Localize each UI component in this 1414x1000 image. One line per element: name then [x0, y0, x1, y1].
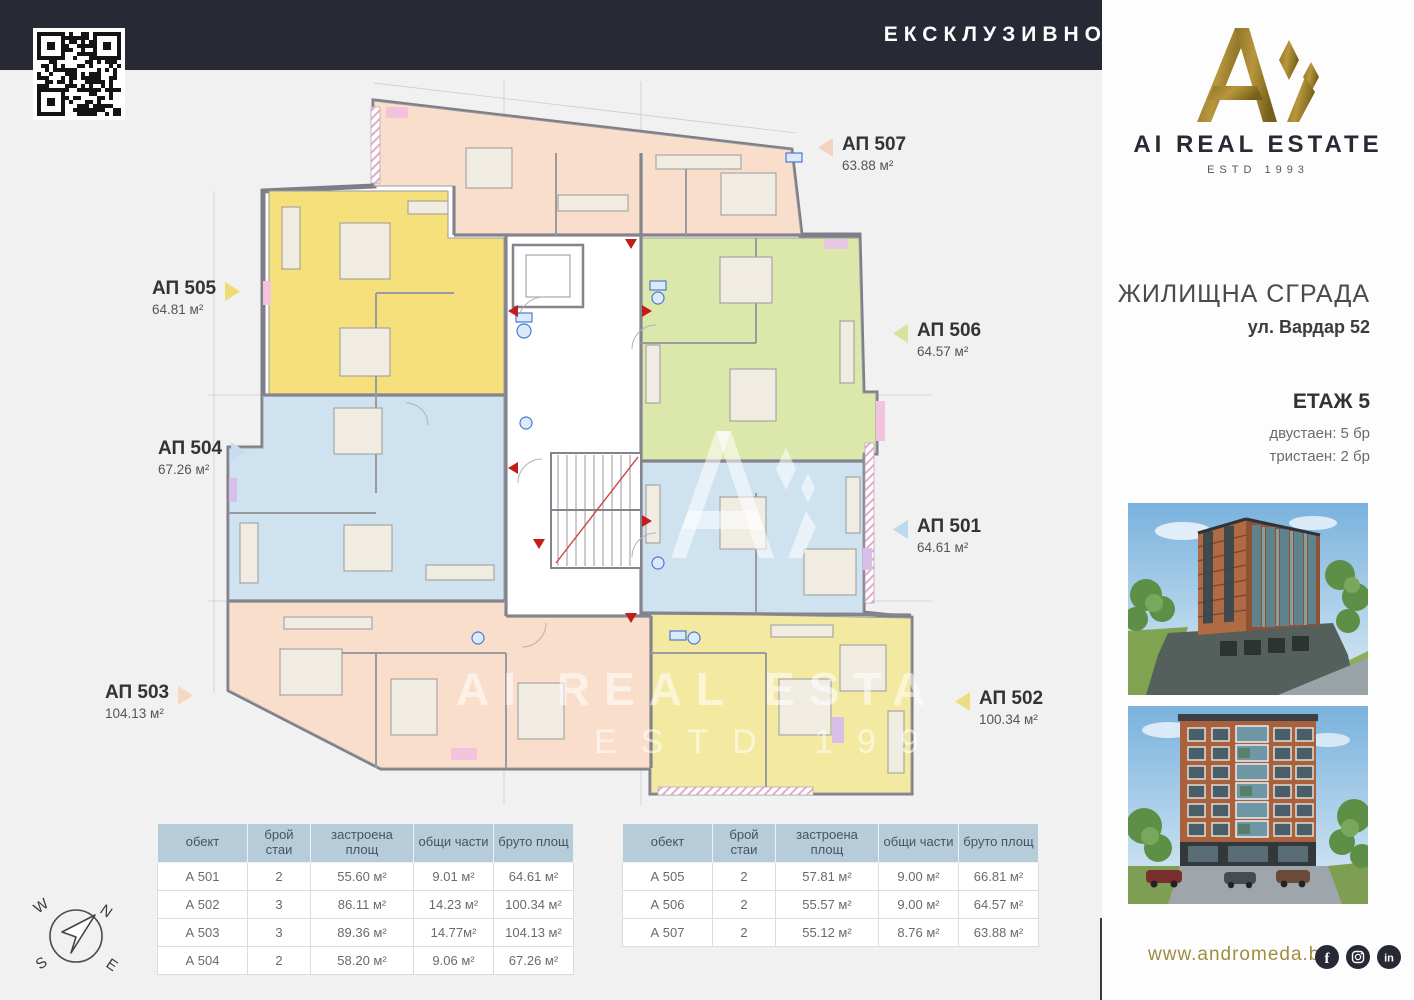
- svg-text:AI REAL ESTATE: AI REAL ESTATE: [456, 663, 936, 715]
- compass-rose: N E S W: [26, 886, 126, 986]
- social-icons: f in: [1314, 944, 1402, 970]
- footer-divider: [1100, 918, 1102, 1000]
- arrow-left-icon: [893, 520, 908, 539]
- arrow-left-icon: [818, 138, 833, 157]
- floor-label: ЕТАЖ 5: [1110, 390, 1370, 414]
- apartment-label-504: АП 504 67.26 м²: [158, 438, 246, 477]
- compass-n: N: [97, 901, 116, 921]
- compass-s: S: [33, 954, 51, 974]
- column-header: брой стаи: [713, 824, 776, 863]
- facebook-icon[interactable]: f: [1315, 945, 1339, 969]
- column-header: бруто площ: [959, 824, 1039, 863]
- brand-logo: AI REAL ESTATE ESTD 1993: [1102, 22, 1414, 176]
- table-row: А 501255.60 м²9.01 м²64.61 м²: [158, 862, 574, 890]
- apartment-label-507: АП 507 63.88 м²: [818, 134, 906, 173]
- column-header: обект: [623, 824, 713, 863]
- column-header: бруто площ: [494, 824, 574, 863]
- svg-text:ESTD 1993: ESTD 1993: [594, 723, 936, 761]
- brand-name: AI REAL ESTATE: [1102, 131, 1414, 159]
- arrow-left-icon: [893, 324, 908, 343]
- column-header: брой стаи: [248, 824, 311, 863]
- building-photo-1: [1128, 503, 1368, 695]
- arrow-right-icon: [231, 442, 246, 461]
- table-row: А 506255.57 м²9.00 м²64.57 м²: [623, 890, 1039, 918]
- building-photo-2: [1128, 706, 1368, 904]
- apartment-label-503: АП 503 104.13 м²: [105, 682, 193, 721]
- apartment-label-502: АП 502 100.34 м²: [955, 688, 1043, 727]
- linkedin-icon[interactable]: in: [1377, 945, 1401, 969]
- compass-w: W: [31, 895, 53, 918]
- compass-e: E: [103, 955, 121, 975]
- column-header: обект: [158, 824, 248, 863]
- header-bar: ЕКСКЛУЗИВНО ОТ: [0, 0, 1208, 70]
- table-row: А 503389.36 м²14.77м²104.13 м²: [158, 918, 574, 946]
- arrow-right-icon: [225, 282, 240, 301]
- project-info: ЖИЛИЩНА СГРАДА ул. Вардар 52 ЕТАЖ 5 двус…: [1110, 280, 1370, 469]
- apartments-table-1: обектброй стаизастроена площобщи частибр…: [157, 823, 574, 975]
- unit-mix-item: тристаен: 2 бр: [1110, 445, 1370, 468]
- column-header: общи части: [879, 824, 959, 863]
- column-header: общи части: [414, 824, 494, 863]
- unit-mix-item: двустаен: 5 бр: [1110, 422, 1370, 445]
- qr-code: [33, 28, 125, 120]
- apartment-label-506: АП 506 64.57 м²: [893, 320, 981, 359]
- table-row: А 505257.81 м²9.00 м²66.81 м²: [623, 862, 1039, 890]
- website-link[interactable]: www.andromeda.bg: [1148, 944, 1332, 966]
- table-row: А 502386.11 м²14.23 м²100.34 м²: [158, 890, 574, 918]
- apartment-label-505: АП 505 64.81 м²: [152, 278, 240, 317]
- column-header: застроена площ: [776, 824, 879, 863]
- arrow-right-icon: [178, 686, 193, 705]
- arrow-left-icon: [955, 692, 970, 711]
- apartment-label-501: АП 501 64.61 м²: [893, 516, 981, 555]
- svg-text:in: in: [1384, 953, 1394, 965]
- instagram-icon[interactable]: [1346, 945, 1370, 969]
- brand-mark-icon: [1183, 22, 1333, 127]
- unit-mix: двустаен: 5 бр тристаен: 2 бр: [1110, 422, 1370, 469]
- brand-estd: ESTD 1993: [1102, 164, 1414, 176]
- project-title: ЖИЛИЩНА СГРАДА: [1110, 280, 1370, 309]
- project-address: ул. Вардар 52: [1110, 317, 1370, 338]
- column-header: застроена площ: [311, 824, 414, 863]
- table-row: А 504258.20 м²9.06 м²67.26 м²: [158, 946, 574, 974]
- floor-plan: AI REAL ESTATE ESTD 1993: [206, 78, 936, 818]
- apartments-table-2: обектброй стаизастроена площобщи частибр…: [622, 823, 1039, 947]
- table-row: А 507255.12 м²8.76 м²63.88 м²: [623, 918, 1039, 946]
